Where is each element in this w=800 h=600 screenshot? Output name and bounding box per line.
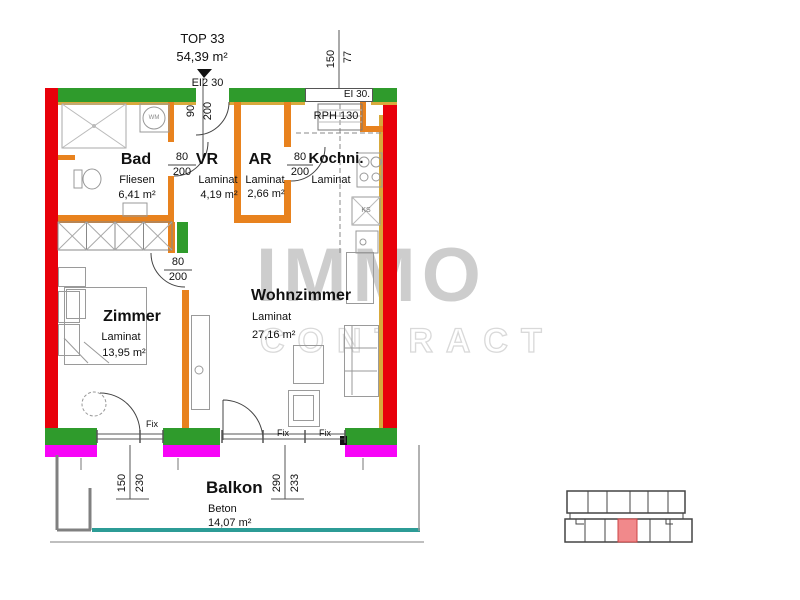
wall-exterior-right — [383, 97, 397, 431]
wardrobe — [58, 222, 172, 250]
fix-label: Fix — [273, 429, 293, 439]
dim-zimmer-door-w: 80 — [163, 256, 193, 268]
dresser — [58, 267, 86, 287]
window-sill — [345, 445, 397, 457]
wall-bad-vr-upper — [168, 102, 174, 142]
wall-shaft-h — [360, 126, 383, 132]
wall-exterior-left — [45, 88, 58, 428]
room-kueche-floor: Laminat — [301, 174, 361, 186]
room-balkon-area: 14,07 m² — [208, 517, 268, 529]
dim-zimmer-window-w: 150 — [116, 468, 128, 498]
floor-lamp — [82, 392, 106, 416]
wall-ar-kueche-upper — [284, 102, 291, 147]
room-wohnzimmer-floor: Laminat — [252, 311, 312, 323]
floorplan: IMMO CONTRACT EI 30. — [0, 0, 800, 600]
room-zimmer-floor: Laminat — [91, 331, 151, 343]
fridge-label: KS — [356, 207, 376, 215]
unit-number: TOP 33 — [160, 32, 245, 46]
armchair-seat — [293, 395, 314, 421]
wall-pier — [345, 428, 397, 445]
room-wohnzimmer-area: 27,16 m² — [252, 329, 312, 341]
window-glazing — [97, 434, 345, 439]
fix-label: Fix — [315, 429, 335, 439]
shower — [62, 104, 126, 148]
room-ar: AR — [235, 151, 285, 169]
unit-area: 54,39 m² — [157, 50, 247, 64]
wohnzimmer-balcony-door-arc — [223, 400, 263, 440]
wall-insulation-top — [371, 102, 397, 105]
coffee-table — [293, 345, 324, 384]
room-zimmer: Zimmer — [97, 308, 167, 326]
top-window-ei30: EI 30. — [305, 88, 373, 102]
washer-label: WM — [145, 115, 163, 122]
wall-bad-bottom — [58, 215, 174, 223]
entrance-door-label: EI2 30 — [170, 77, 245, 89]
dim-zimmer-window-h: 230 — [134, 468, 146, 498]
room-bad-area: 6,41 m² — [107, 189, 167, 201]
wall-top-segment — [229, 88, 305, 102]
dim-zimmer-door-h: 200 — [163, 271, 193, 283]
dim-top-window-h: 77 — [342, 42, 354, 72]
wall-stub — [168, 222, 175, 253]
fix-label: Fix — [142, 420, 162, 430]
wall-wc-niche — [58, 155, 75, 160]
wall-insulation-right — [379, 115, 383, 431]
building-overview — [565, 491, 692, 542]
dim-entrance-w: 90 — [185, 96, 197, 126]
couch — [344, 325, 379, 397]
balcony-wall — [57, 455, 91, 530]
wall-pier — [163, 428, 220, 445]
toilet-tank — [74, 170, 82, 188]
dim-top-window-w: 150 — [325, 44, 337, 74]
range-hood-label: RPH 130 — [310, 110, 362, 122]
room-vr: VR — [182, 151, 232, 169]
cabinet — [191, 315, 210, 410]
wall-pier — [45, 428, 97, 445]
wall-insulation-top — [58, 102, 196, 105]
window-jambs — [97, 430, 345, 443]
toilet-bowl — [83, 169, 101, 189]
room-balkon-floor: Beton — [208, 503, 258, 515]
room-ar-area: 2,66 m² — [236, 188, 296, 200]
section-marker — [340, 436, 347, 445]
wall-zimmer-wohnzimmer — [182, 290, 189, 430]
dim-entrance-h: 200 — [202, 96, 214, 126]
wall-top-segment — [58, 88, 196, 102]
room-balkon: Balkon — [206, 479, 286, 498]
pillow — [66, 289, 86, 319]
room-ar-floor: Laminat — [235, 174, 295, 186]
room-zimmer-area: 13,95 m² — [94, 347, 154, 359]
window-sill — [163, 445, 220, 457]
window-sill — [45, 445, 97, 457]
wall-stub-green — [177, 222, 188, 253]
zimmer-balcony-door-arc — [100, 393, 140, 433]
room-bad-floor: Fliesen — [107, 174, 167, 186]
room-bad: Bad — [106, 151, 166, 169]
room-wohnzimmer: Wohnzimmer — [251, 287, 361, 305]
wall-top-segment — [371, 88, 397, 102]
dim-wohn-window-h: 233 — [289, 468, 301, 498]
room-kueche: Kochni. — [301, 151, 371, 168]
wall-ar-bottom — [234, 215, 291, 223]
